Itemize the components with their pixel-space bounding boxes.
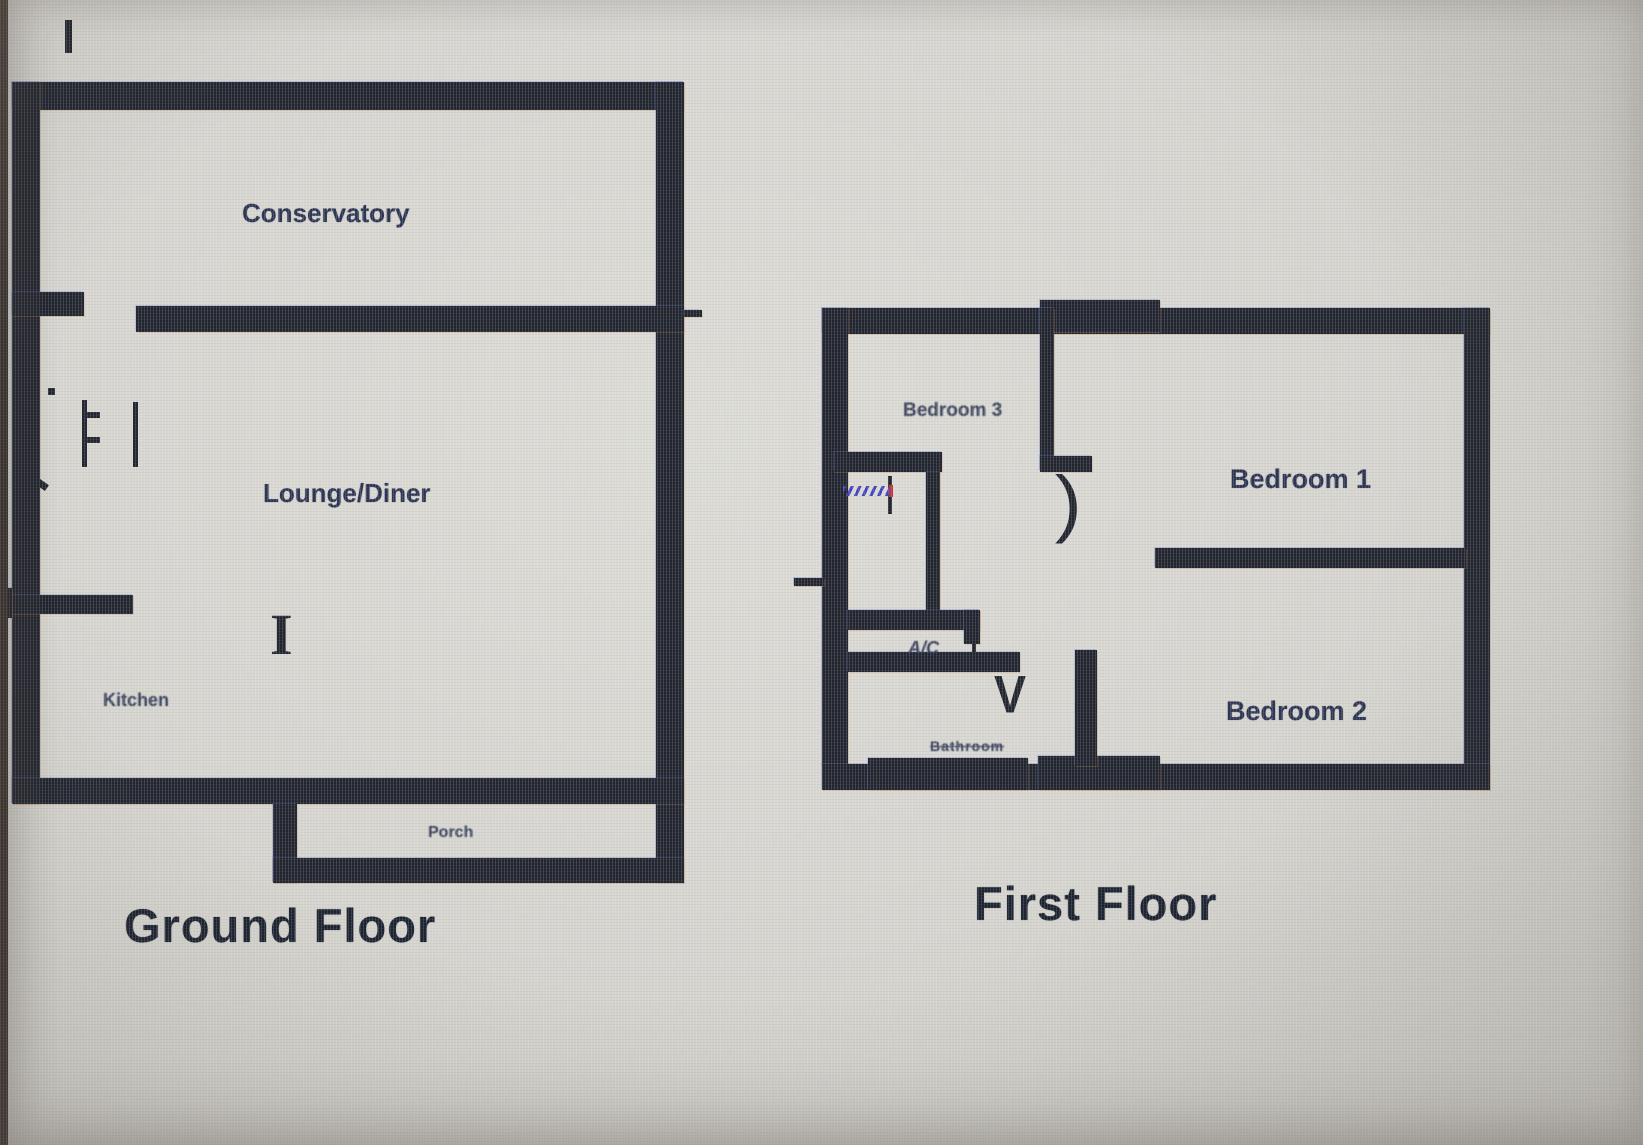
gf-right-wall [656,82,684,883]
ff-airing-cupboard-top-wall [848,610,980,630]
stairs-annotation-mark [843,486,891,496]
ff-bottom-wall-block [1038,756,1160,790]
ff-airing-cupboard-tick [972,638,976,668]
room-label-bedroom2: Bedroom 2 [1226,696,1367,727]
gf-door-post-glyph: I [270,606,293,664]
stairs-annotation-tip [889,485,893,497]
ff-bedroom2-left-wall [1075,650,1097,766]
gf-bottom-wall [12,778,684,804]
ff-bedroom3-right-wall [1040,308,1054,470]
gf-porch-bottom-wall [273,858,684,883]
gf-conservatory-wall [136,306,684,332]
ff-bedroom3-bottom-wall [834,452,942,472]
ff-left-wall-tick [794,578,824,586]
gf-conservatory-wall-right-stub [684,310,702,317]
room-label-lounge-diner: Lounge/Diner [263,478,431,509]
gf-door-hinge-tick [87,437,100,443]
room-label-airing-cupboard: A/C [908,638,939,659]
room-label-conservatory: Conservatory [242,198,410,229]
room-label-bedroom1: Bedroom 1 [1230,464,1371,495]
gf-top-wall [12,82,684,110]
gf-kitchen-wall [0,595,133,614]
first-floor-title: First Floor [974,876,1217,931]
ff-right-wall [1464,308,1490,790]
room-label-bedroom3: Bedroom 3 [903,400,1002,422]
gf-conservatory-wall-stub [12,292,84,316]
photo-left-edge [0,0,8,1145]
ff-top-wall-block [1040,300,1160,332]
room-label-kitchen: Kitchen [103,690,169,711]
photo-artifact-tick [65,20,72,53]
gf-door-hinge-tick [87,412,100,418]
gf-wall-dot [48,388,55,395]
gf-door-line [133,402,138,467]
ff-door-swing-arc: ) [1055,466,1082,540]
ff-bedroom-divider-wall [1155,548,1466,568]
room-label-bathroom: Bathroom [930,738,1004,754]
ff-stair-wall [926,472,940,614]
ff-bottom-wall-block [868,758,1028,790]
ground-floor-title: Ground Floor [124,898,436,953]
gf-left-wall [12,82,40,804]
ff-left-wall [822,308,848,766]
floorplan-photo: I Conservatory Lounge/Diner Kitchen Porc… [0,0,1643,1145]
ff-bathroom-door-glyph: V [994,670,1026,723]
gf-door-line [82,400,87,467]
room-label-porch: Porch [428,824,473,842]
